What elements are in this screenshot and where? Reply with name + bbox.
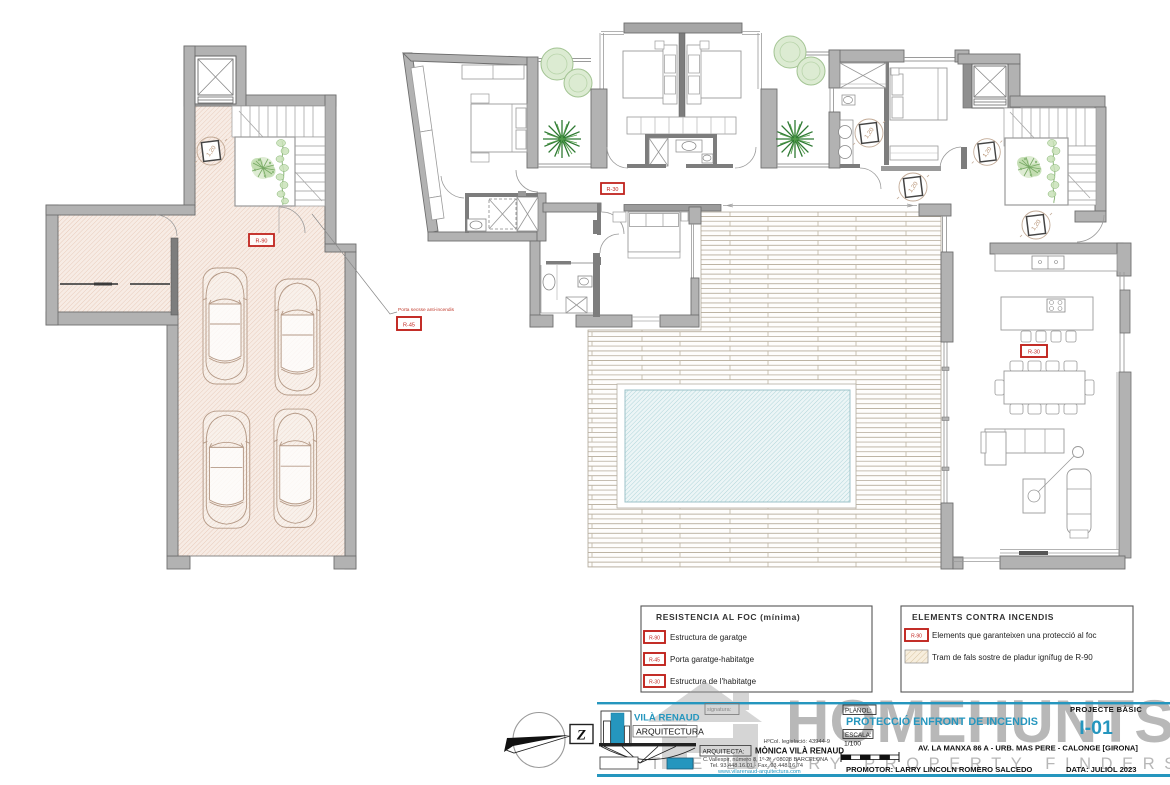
svg-text:MÒNICA VILÀ RENAUD: MÒNICA VILÀ RENAUD bbox=[755, 747, 844, 756]
svg-text:R-30: R-30 bbox=[1028, 350, 1040, 356]
svg-text:ARQUITECTURA: ARQUITECTURA bbox=[636, 727, 704, 737]
svg-text:PROJECTE BÀSIC: PROJECTE BÀSIC bbox=[1070, 705, 1142, 714]
svg-text:R-30: R-30 bbox=[607, 187, 619, 193]
svg-text:HºCol. legislació: 43944-9: HºCol. legislació: 43944-9 bbox=[763, 738, 830, 745]
svg-text:AV. LA MANXA 86 A - URB. MAS P: AV. LA MANXA 86 A - URB. MAS PERE - CALO… bbox=[918, 744, 1138, 753]
svg-text:1/100: 1/100 bbox=[844, 741, 861, 748]
svg-text:R-90: R-90 bbox=[911, 634, 922, 640]
svg-text:PROMOTOR: LARRY LINCOLN ROMERO: PROMOTOR: LARRY LINCOLN ROMERO SALCEDO bbox=[846, 765, 1032, 774]
svg-text:Tram de fals sostre de pladur: Tram de fals sostre de pladur ignífug de… bbox=[932, 653, 1093, 662]
svg-text:ELEMENTS CONTRA INCENDIS: ELEMENTS CONTRA INCENDIS bbox=[912, 612, 1054, 622]
svg-text:Porta secsse anti-incendis: Porta secsse anti-incendis bbox=[398, 307, 455, 313]
svg-text:ESCALA:: ESCALA: bbox=[845, 732, 872, 739]
svg-text:Z: Z bbox=[576, 728, 586, 744]
svg-text:ARQUITECTA:: ARQUITECTA: bbox=[703, 749, 745, 756]
svg-text:signatura:: signatura: bbox=[707, 707, 732, 713]
svg-text:RESISTENCIA AL FOC (mínima): RESISTENCIA AL FOC (mínima) bbox=[656, 612, 800, 622]
svg-text:R-90: R-90 bbox=[256, 239, 268, 245]
svg-text:Estructura de l'habitatge: Estructura de l'habitatge bbox=[670, 677, 757, 686]
svg-text:PROTECCIÓ ENFRONT DE INCENDIS: PROTECCIÓ ENFRONT DE INCENDIS bbox=[846, 715, 1038, 728]
svg-text:R-90: R-90 bbox=[649, 636, 660, 642]
svg-text:R-30: R-30 bbox=[649, 680, 660, 686]
svg-text:R-45: R-45 bbox=[649, 658, 660, 664]
svg-text:C.Vallespir, número 8, 1º-2ª: C.Vallespir, número 8, 1º-2ª - 08028 BAR… bbox=[703, 756, 828, 763]
svg-text:Elements que garanteixen una p: Elements que garanteixen una protecció a… bbox=[932, 631, 1097, 640]
svg-text:DATA: JULIOL 2023: DATA: JULIOL 2023 bbox=[1066, 765, 1136, 774]
svg-text:VILÀ RENAUD: VILÀ RENAUD bbox=[634, 712, 700, 724]
svg-text:I-01: I-01 bbox=[1079, 717, 1113, 739]
svg-text:Porta garatge-habitatge: Porta garatge-habitatge bbox=[670, 655, 755, 664]
svg-text:Estructura de garatge: Estructura de garatge bbox=[670, 633, 747, 642]
svg-text:www.vilarenaud-arquitectura.co: www.vilarenaud-arquitectura.com bbox=[717, 769, 801, 775]
svg-text:PLÀNOL:: PLÀNOL: bbox=[845, 706, 872, 715]
svg-text:R-45: R-45 bbox=[403, 323, 415, 329]
